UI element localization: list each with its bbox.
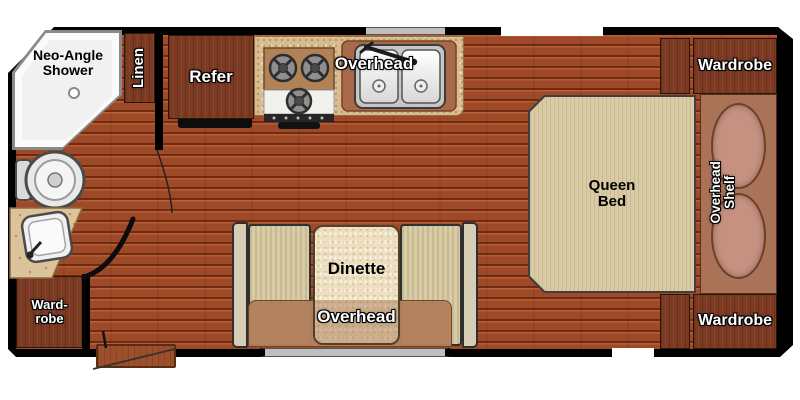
queen-bed: Queen Bed xyxy=(528,95,696,293)
dinette-bench-end-left xyxy=(232,222,248,348)
queen-bed-mattress: Queen Bed xyxy=(530,97,694,291)
window-bedroom-top xyxy=(501,26,603,36)
wardrobe-top: Wardrobe xyxy=(693,38,777,94)
window-kitchen xyxy=(366,27,445,35)
refer-label: Refer xyxy=(189,68,232,86)
nightstand-bottom xyxy=(660,294,690,349)
nightstand-top xyxy=(660,38,690,94)
bath-wardrobe-label: Ward- robe xyxy=(31,298,67,326)
dinette-label: Dinette xyxy=(305,260,408,278)
bath-wardrobe: Ward- robe xyxy=(16,276,83,348)
wardrobe-bottom-label: Wardrobe xyxy=(698,313,772,330)
dinette-overhead-label: Overhead xyxy=(305,308,408,326)
linen-label: Linen xyxy=(131,48,147,88)
wardrobe-top-label: Wardrobe xyxy=(698,58,772,75)
kitchen-overhead-label: Overhead xyxy=(300,55,448,73)
bathroom-wall xyxy=(82,274,90,349)
kitchen-counter xyxy=(254,36,464,116)
dinette-bench-end-right xyxy=(462,222,478,348)
entry-step xyxy=(96,344,176,368)
refrigerator-ledge xyxy=(178,119,252,128)
overhead-shelf-label: Overhead Shelf xyxy=(709,161,738,223)
window-bedroom-bottom xyxy=(612,348,654,357)
linen-label-wrap: Linen xyxy=(89,38,189,98)
overhead-shelf-label-wrap: Overhead Shelf xyxy=(673,152,773,232)
queen-bed-label: Queen Bed xyxy=(589,178,636,210)
floorplan: Neo-Angle Shower Ward- robe Linen Refer … xyxy=(0,0,800,400)
window-dinette xyxy=(260,348,450,357)
wardrobe-bottom: Wardrobe xyxy=(693,294,777,349)
